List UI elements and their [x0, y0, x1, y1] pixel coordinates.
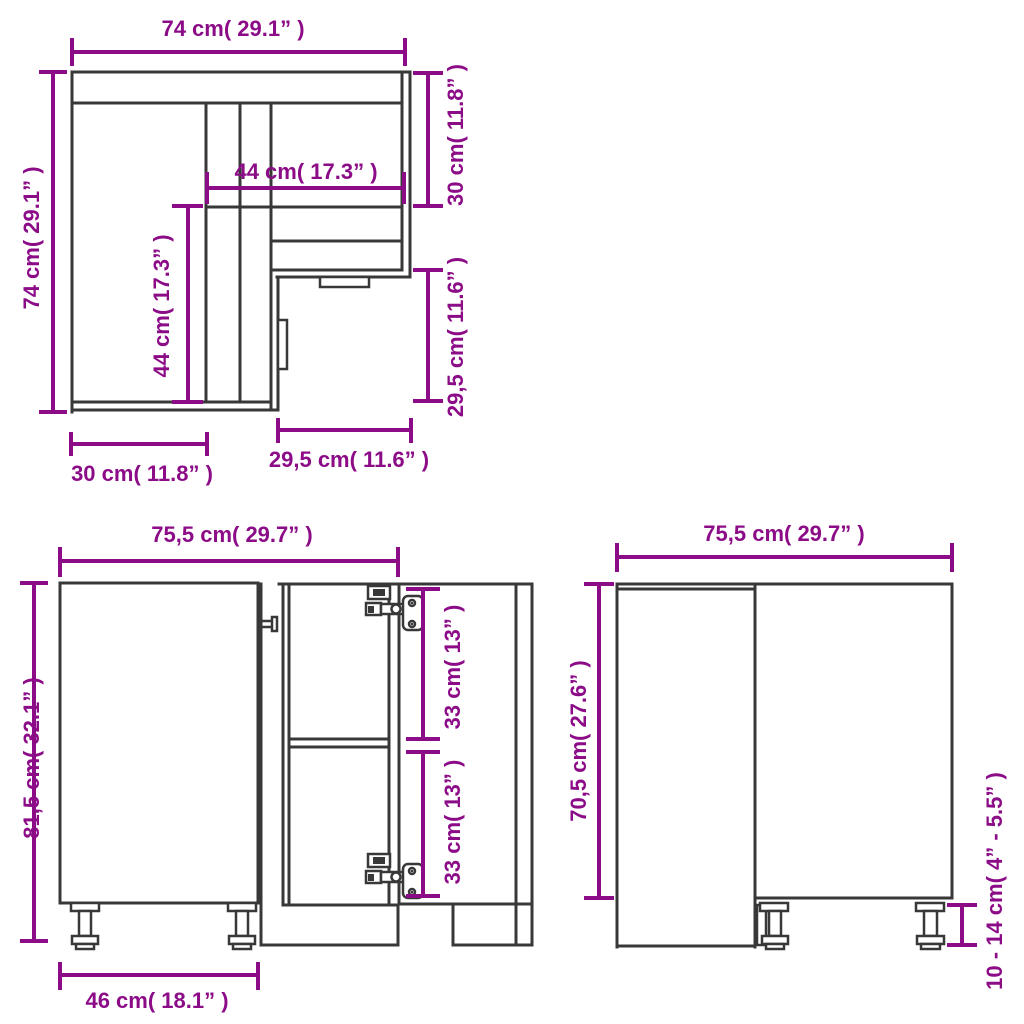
- dimension-diagram: 74 cm( 29.1” ) 74 cm( 29.1” ) 30 cm( 11.…: [0, 0, 1024, 1024]
- dimension-label: 29,5 cm( 11.6” ): [443, 257, 468, 417]
- dimension-line: [413, 270, 443, 401]
- dimension-line: [278, 418, 411, 443]
- hinge-screw: [392, 873, 401, 882]
- front-view-width-dimension: 75,5 cm( 29.7” ): [60, 522, 398, 577]
- hinge-screw: [392, 605, 401, 614]
- top-view-cabinet-outline: [72, 72, 410, 412]
- screw-dot: [411, 602, 414, 605]
- hinge-cup-slot: [373, 857, 385, 864]
- dimension-line: [617, 543, 952, 572]
- bottom-hinge: [366, 854, 423, 898]
- leg-foot-tip: [921, 944, 940, 949]
- dimension-label: 46 cm( 18.1” ): [85, 988, 228, 1013]
- dimension-label: 30 cm( 11.8” ): [71, 461, 213, 486]
- dimension-label: 74 cm( 29.1” ): [19, 166, 44, 309]
- return-side-panel: [399, 584, 532, 904]
- leg-foot-tip: [233, 944, 251, 949]
- leg-stem: [79, 911, 91, 936]
- front-left-leg: [71, 903, 99, 949]
- door-handle: [320, 277, 369, 287]
- side-right-leg: [916, 903, 944, 949]
- side-view-leg-height-dimension: 10 - 14 cm( 4” - 5.5” ): [947, 772, 1007, 990]
- closed-door-panel: [60, 583, 258, 903]
- dimension-line: [72, 38, 405, 66]
- leg-stem: [236, 911, 248, 936]
- front-view: 75,5 cm( 29.7” ) 81,5 cm( 32.1” ) 33 cm(…: [19, 522, 532, 1013]
- dimension-label: 70,5 cm( 27.6” ): [566, 660, 591, 821]
- dimension-label: 44 cm( 17.3” ): [149, 234, 174, 377]
- top-view-right-front-dimension: 29,5 cm( 11.6” ): [413, 257, 468, 417]
- dimension-label: 81,5 cm( 32.1” ): [19, 677, 44, 838]
- top-view-inner-depth-dimension: 44 cm( 17.3” ): [149, 206, 203, 402]
- side-view: 75,5 cm( 29.7” ) 70,5 cm( 27.6” ) 10 - 1…: [566, 521, 1007, 990]
- product-dimension-image: 74 cm( 29.1” ) 74 cm( 29.1” ) 30 cm( 11.…: [0, 0, 1024, 1024]
- front-middle-leg: [228, 903, 256, 949]
- dimension-label: 74 cm( 29.1” ): [161, 16, 304, 41]
- dimension-line: [60, 547, 398, 577]
- top-view-bottom-width-dimension: 29,5 cm( 11.6” ): [269, 418, 429, 472]
- hinge-cam: [368, 874, 374, 881]
- dimension-label: 44 cm( 17.3” ): [234, 159, 377, 184]
- leg-foot-tip: [766, 944, 784, 949]
- dimension-label: 29,5 cm( 11.6” ): [269, 447, 429, 472]
- leg-foot-tip: [76, 944, 94, 949]
- top-view-right-depth-dimension: 30 cm( 11.8” ): [413, 64, 468, 206]
- screw-dot: [411, 870, 414, 873]
- top-view-depth-dimension: 74 cm( 29.1” ): [19, 72, 67, 412]
- dimension-line: [71, 432, 207, 456]
- top-view-left-width-dimension: 30 cm( 11.8” ): [71, 432, 213, 486]
- door-handle: [278, 320, 287, 369]
- dimension-label: 75,5 cm( 29.7” ): [151, 522, 312, 547]
- return-plinth: [453, 904, 532, 945]
- screw-dot: [411, 891, 414, 894]
- side-view-cabinet-outline: [617, 584, 952, 947]
- dimension-line: [413, 73, 443, 206]
- top-view: 74 cm( 29.1” ) 74 cm( 29.1” ) 30 cm( 11.…: [19, 16, 468, 486]
- dimension-line: [60, 962, 258, 990]
- dimension-label: 33 cm( 13” ): [440, 760, 465, 885]
- front-view-door-width-dimension: 46 cm( 18.1” ): [60, 962, 258, 1013]
- side-view-body-height-dimension: 70,5 cm( 27.6” ): [566, 584, 614, 898]
- leg-stem: [769, 911, 781, 936]
- side-view-width-dimension: 75,5 cm( 29.7” ): [617, 521, 952, 572]
- screw-dot: [411, 623, 414, 626]
- dimension-line: [172, 206, 203, 402]
- door-handle-knob: [272, 617, 277, 631]
- dimension-line: [947, 905, 977, 945]
- hinge-cam: [368, 606, 374, 613]
- leg-stem: [924, 911, 937, 936]
- hinge-cup-slot: [373, 589, 385, 596]
- top-hinge: [366, 586, 423, 630]
- dimension-label: 33 cm( 13” ): [440, 605, 465, 730]
- dimension-label: 30 cm( 11.8” ): [443, 64, 468, 206]
- top-view-width-dimension: 74 cm( 29.1” ): [72, 16, 405, 66]
- front-view-height-dimension: 81,5 cm( 32.1” ): [19, 583, 48, 941]
- dimension-label: 75,5 cm( 29.7” ): [703, 521, 864, 546]
- top-view-inner-width-dimension: 44 cm( 17.3” ): [207, 159, 404, 204]
- dimension-label: 10 - 14 cm( 4” - 5.5” ): [982, 772, 1007, 990]
